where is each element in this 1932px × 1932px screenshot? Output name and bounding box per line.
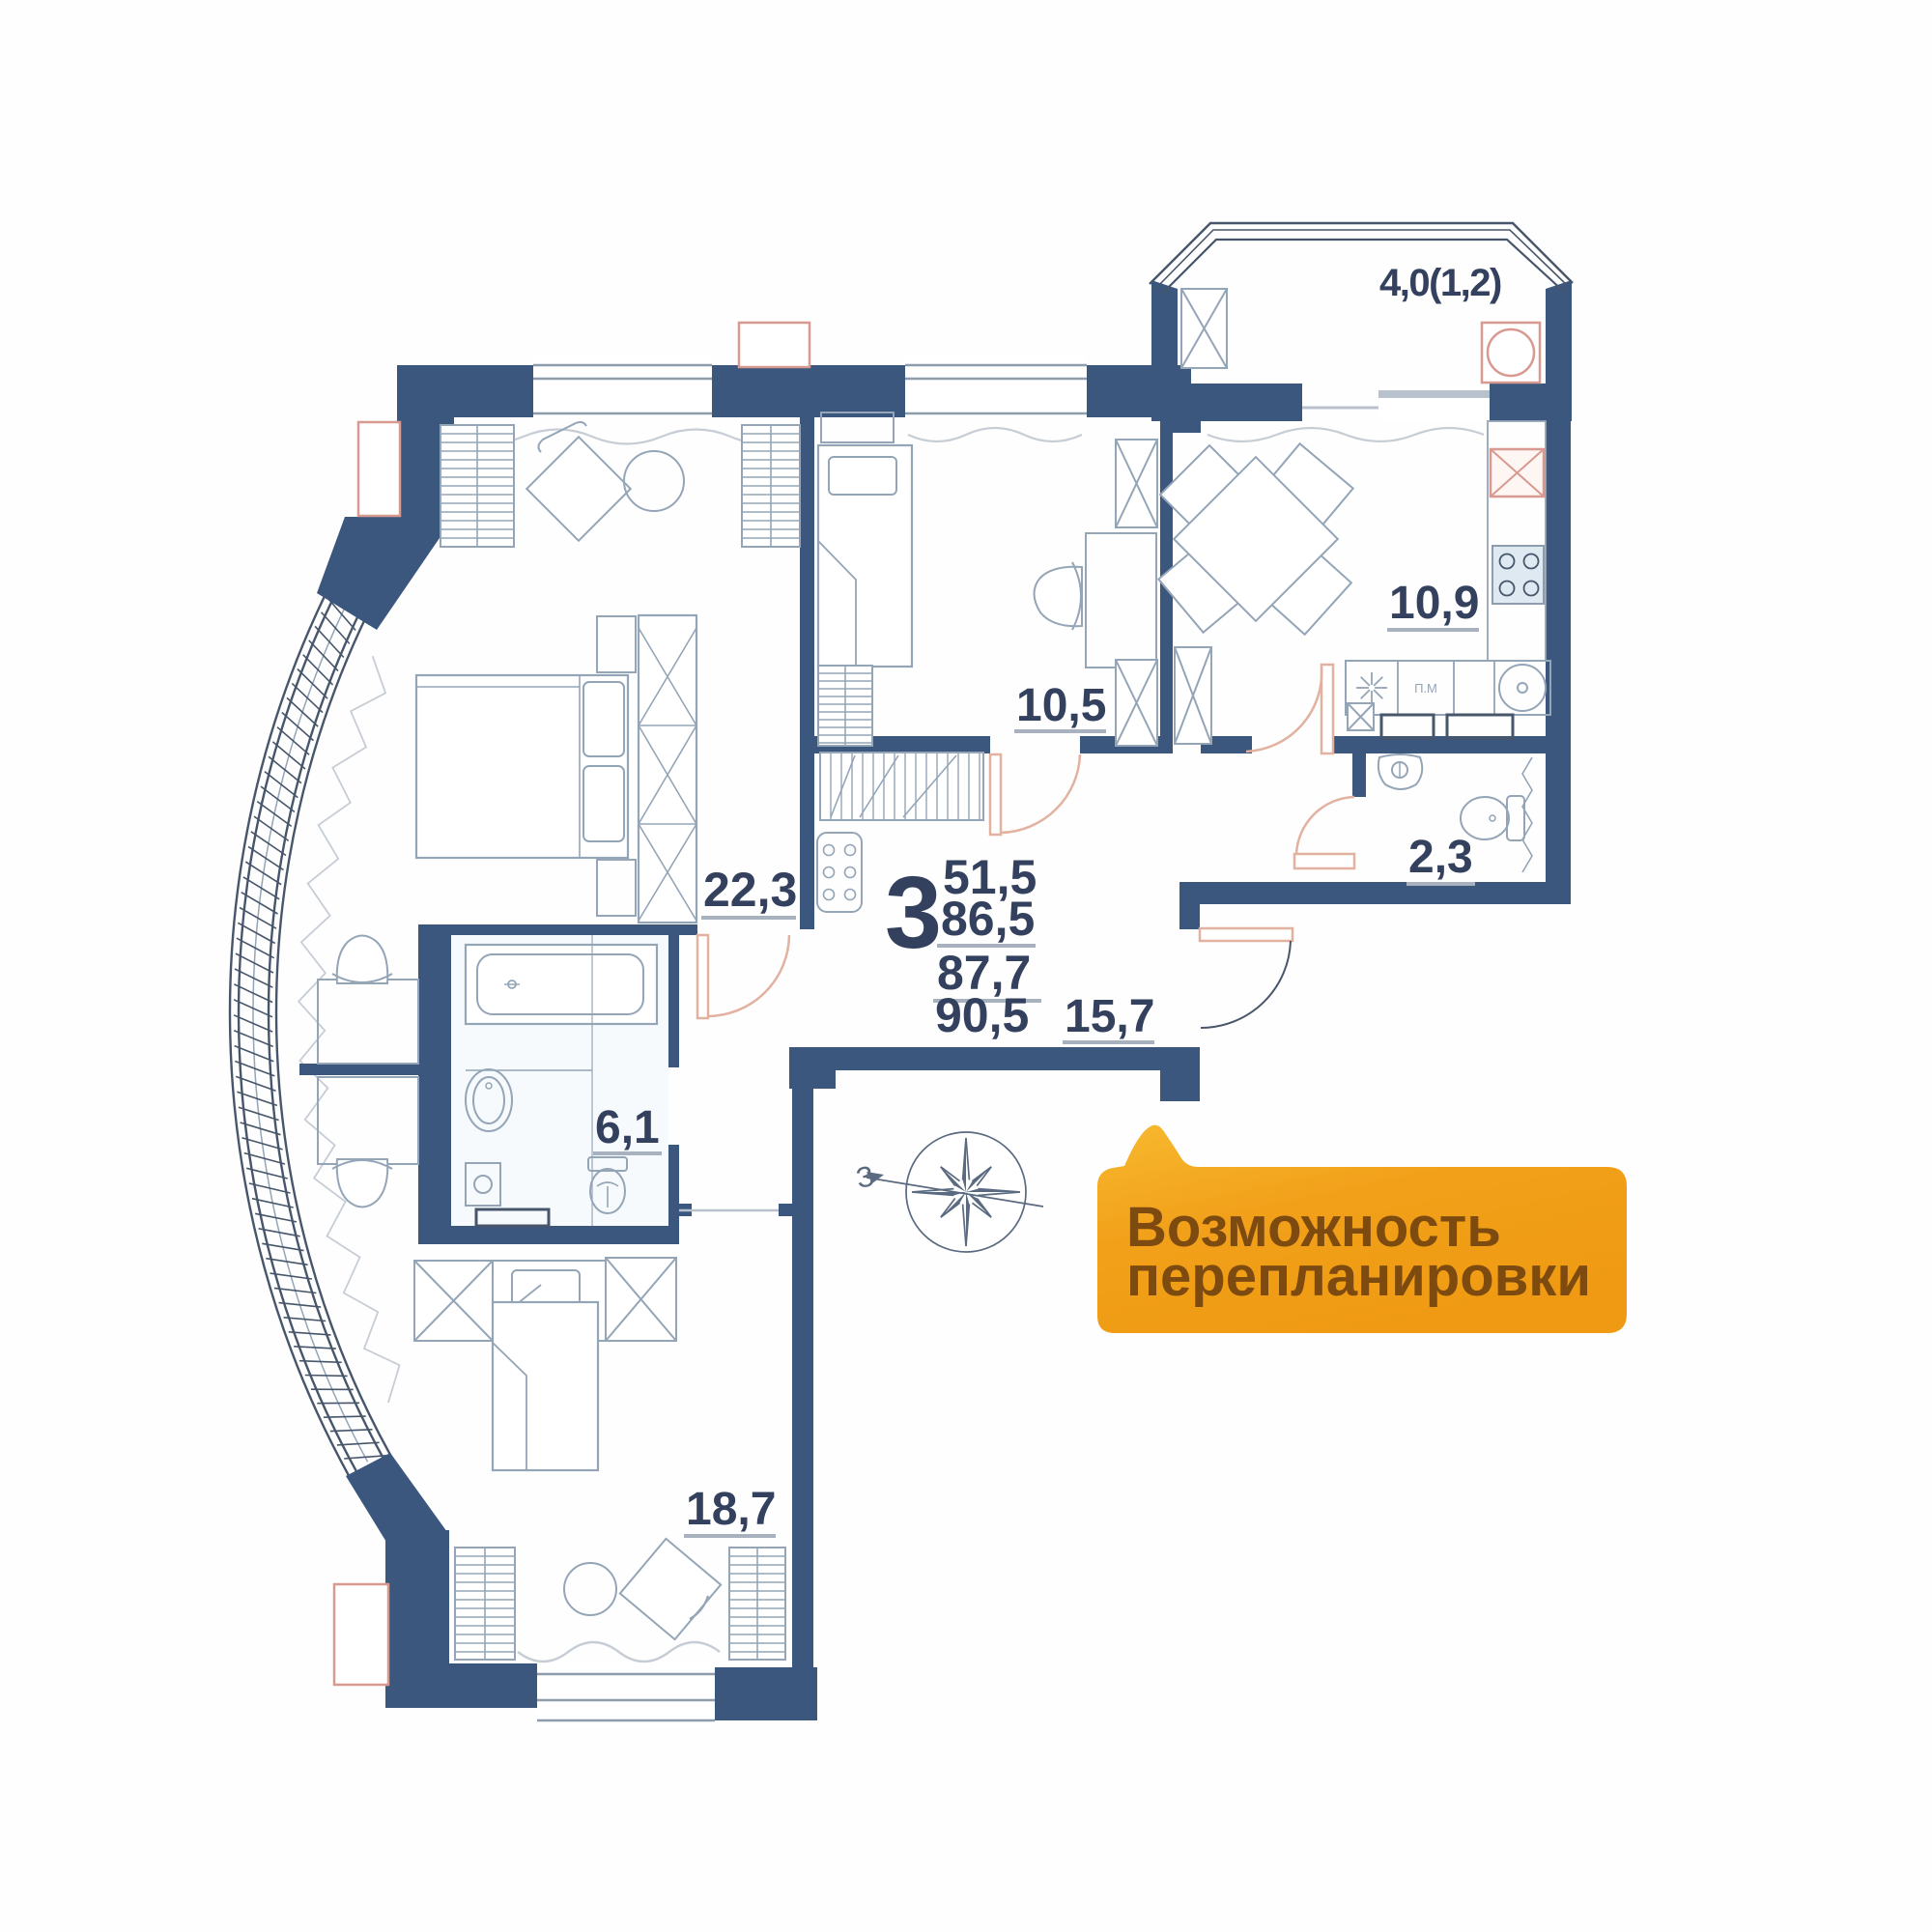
svg-text:10,5: 10,5	[1016, 680, 1106, 731]
svg-text:П.М: П.М	[1414, 681, 1437, 696]
svg-text:6,1: 6,1	[595, 1102, 660, 1153]
svg-text:90,5: 90,5	[935, 988, 1029, 1042]
svg-text:22,3: 22,3	[703, 863, 797, 917]
svg-text:10,9: 10,9	[1389, 578, 1479, 629]
svg-text:2,3: 2,3	[1408, 832, 1473, 883]
svg-text:18,7: 18,7	[686, 1484, 776, 1535]
svg-text:3: 3	[885, 856, 942, 970]
svg-text:86,5: 86,5	[941, 892, 1035, 946]
svg-text:перепланировки: перепланировки	[1126, 1245, 1591, 1308]
svg-text:15,7: 15,7	[1065, 991, 1154, 1042]
svg-text:4,0(1,2): 4,0(1,2)	[1379, 262, 1501, 304]
